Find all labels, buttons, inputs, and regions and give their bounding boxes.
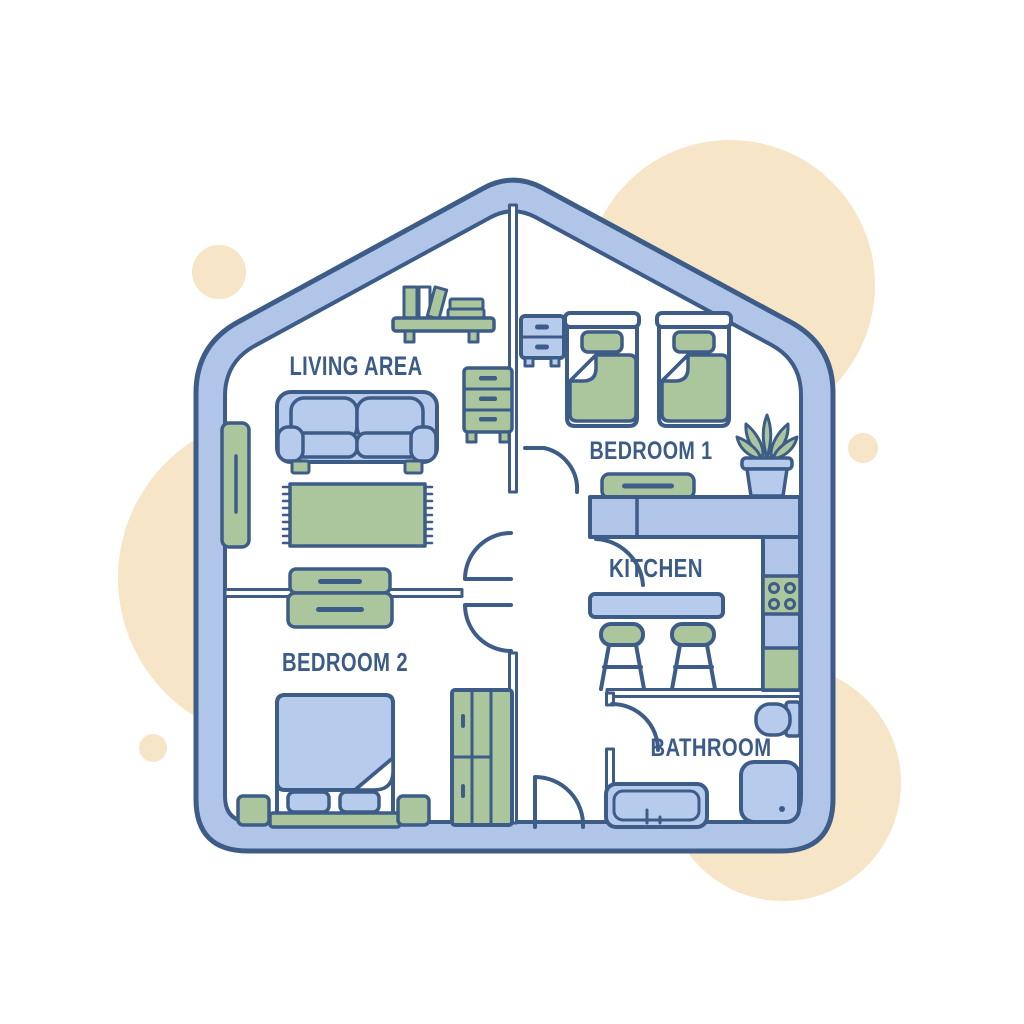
stool-seat xyxy=(601,624,643,645)
beige-circle-right-small xyxy=(848,433,878,463)
room-bedroom-2 xyxy=(238,690,512,827)
shelf-bracket-left xyxy=(405,331,414,342)
label-living-area: LIVING AREA xyxy=(290,351,423,381)
chest-handle-2 xyxy=(479,397,497,402)
sofa xyxy=(277,392,437,473)
plant-pot-body xyxy=(747,469,787,496)
sideboard-upper-handle xyxy=(318,579,362,584)
sofa-armrest-left xyxy=(278,427,303,461)
bench-handle xyxy=(622,484,674,489)
toilet-bowl xyxy=(756,704,790,735)
double-bed xyxy=(270,695,400,827)
shelf-board xyxy=(393,318,494,331)
tall-cabinet xyxy=(222,423,249,547)
nightstand-foot-right xyxy=(551,358,559,366)
sofa-foot-right xyxy=(405,461,422,473)
sofa-armrest-right xyxy=(411,427,436,461)
chest-foot-left xyxy=(467,432,476,442)
chest-foot-right xyxy=(500,432,509,442)
bed2-headboard xyxy=(270,813,400,827)
label-kitchen: KITCHEN xyxy=(609,553,703,583)
wardrobe-handle-lower xyxy=(461,784,465,798)
wardrobe-handle-upper xyxy=(461,714,465,728)
chest-of-drawers xyxy=(464,368,512,442)
stove xyxy=(763,576,800,614)
twin-bed-1 xyxy=(565,313,639,426)
nightstand-bedroom2-left xyxy=(238,796,269,825)
nightstand-foot-left xyxy=(525,358,533,366)
toilet xyxy=(756,702,800,736)
chest-handle-1 xyxy=(479,376,497,381)
breakfast-bar xyxy=(590,594,723,617)
shower-drain xyxy=(779,806,785,812)
label-bedroom-1: BEDROOM 1 xyxy=(590,437,713,465)
bed2-pillow-right xyxy=(340,792,379,812)
label-bedroom-2: BEDROOM 2 xyxy=(282,647,408,677)
rug xyxy=(283,484,432,546)
chest-handle-3 xyxy=(479,417,497,422)
shower-tray xyxy=(741,762,799,822)
bed-pillow xyxy=(582,332,622,352)
bench-bedroom1 xyxy=(602,474,694,498)
nightstand-bedroom1 xyxy=(521,316,564,366)
shelf-bracket-right xyxy=(469,331,478,342)
beige-circle-bottom-left-small xyxy=(139,734,167,762)
floor-plan-illustration: LIVING AREA BEDROOM 1 KITCHEN BEDROOM 2 … xyxy=(0,0,1024,1024)
counter-top-run xyxy=(590,497,800,537)
wardrobe xyxy=(452,690,512,825)
twin-bed-2 xyxy=(657,313,731,426)
bed-headboard xyxy=(565,313,639,327)
counter-green-section xyxy=(763,648,800,690)
label-bathroom: BATHROOM xyxy=(651,734,772,762)
nightstand-handle-2 xyxy=(535,345,549,350)
bathtub xyxy=(606,784,707,827)
nightstand-bedroom2-right xyxy=(398,796,429,825)
sideboard-lower-handle xyxy=(316,607,364,612)
bed2-pillow-left xyxy=(288,792,329,812)
sideboards xyxy=(288,569,392,627)
book-upright-1 xyxy=(404,287,417,318)
shower xyxy=(741,762,799,822)
rug-body xyxy=(290,484,425,546)
sofa-foot-left xyxy=(292,461,309,473)
nightstand-handle-1 xyxy=(535,325,549,330)
wall-center-vertical xyxy=(510,205,517,492)
beige-circle-top-left-small xyxy=(192,245,246,299)
